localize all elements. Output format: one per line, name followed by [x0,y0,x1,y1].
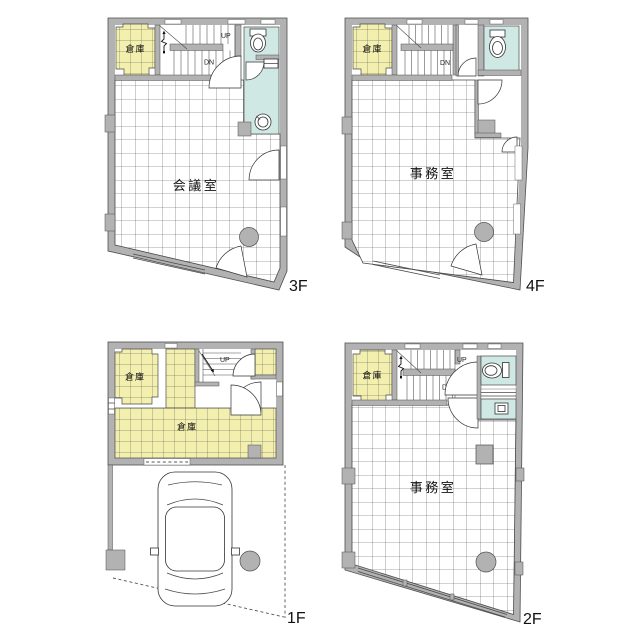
sink-icon [255,114,271,130]
storage-label-1f-a: 倉庫 [125,371,145,382]
column-circle [240,551,260,571]
toilet-icon [490,30,506,58]
stairs-down-label-4f: DN [440,60,450,67]
storage-label-4f: 倉庫 [362,43,382,54]
storage-label-1f-b: 倉庫 [177,421,197,432]
stairs-up-label-3f: UP [221,33,231,40]
stairs-up-label-2f: UP [457,357,467,364]
column-circle [476,552,496,572]
sink-icon [495,403,508,414]
toilet-icon [483,363,510,379]
floor-plan-3f: 倉庫 UP DN [105,18,308,295]
storage-room-4f: 倉庫 [353,24,392,75]
toilet-room-3f [238,27,279,136]
storage-label-3f: 倉庫 [125,43,145,54]
floorplan-sheet: 倉庫 UP DN [0,0,640,640]
floor-label-2f: 2F [523,611,542,628]
floor-plan-4f: 倉庫 DN [342,18,545,295]
stairs-down-label-3f: DN [204,60,214,67]
garage-area [106,465,285,618]
office-room-label-2f: 事務室 [410,480,457,495]
floor-plan-2f: 倉庫 UP DN [342,343,542,628]
garage-shutter [144,459,190,466]
floor-label-1f: 1F [287,610,306,627]
column-square [476,445,493,464]
storage-room-3f: 倉庫 [116,24,155,75]
car-icon [151,472,240,606]
storage-room-2f: 倉庫 [353,350,392,402]
meeting-room-label: 会議室 [173,178,220,193]
column-circle [475,223,494,242]
toilet-icon [250,29,266,52]
window-left-1f [109,398,115,414]
floor-label-3f: 3F [289,278,308,295]
stairs-up-label-1f: UP [220,357,230,364]
column-circle [240,228,259,247]
office-room-label-4f: 事務室 [410,166,457,181]
storage-room-1f-left: 倉庫 [115,349,158,404]
floorplan-canvas: 倉庫 UP DN [0,0,640,640]
toilet-room-4f [478,26,521,76]
storage-label-2f: 倉庫 [362,370,382,381]
office-floor-2f [352,405,516,615]
floor-label-4f: 4F [526,278,545,295]
floor-plan-1f: 倉庫 倉庫 UP [106,342,306,627]
